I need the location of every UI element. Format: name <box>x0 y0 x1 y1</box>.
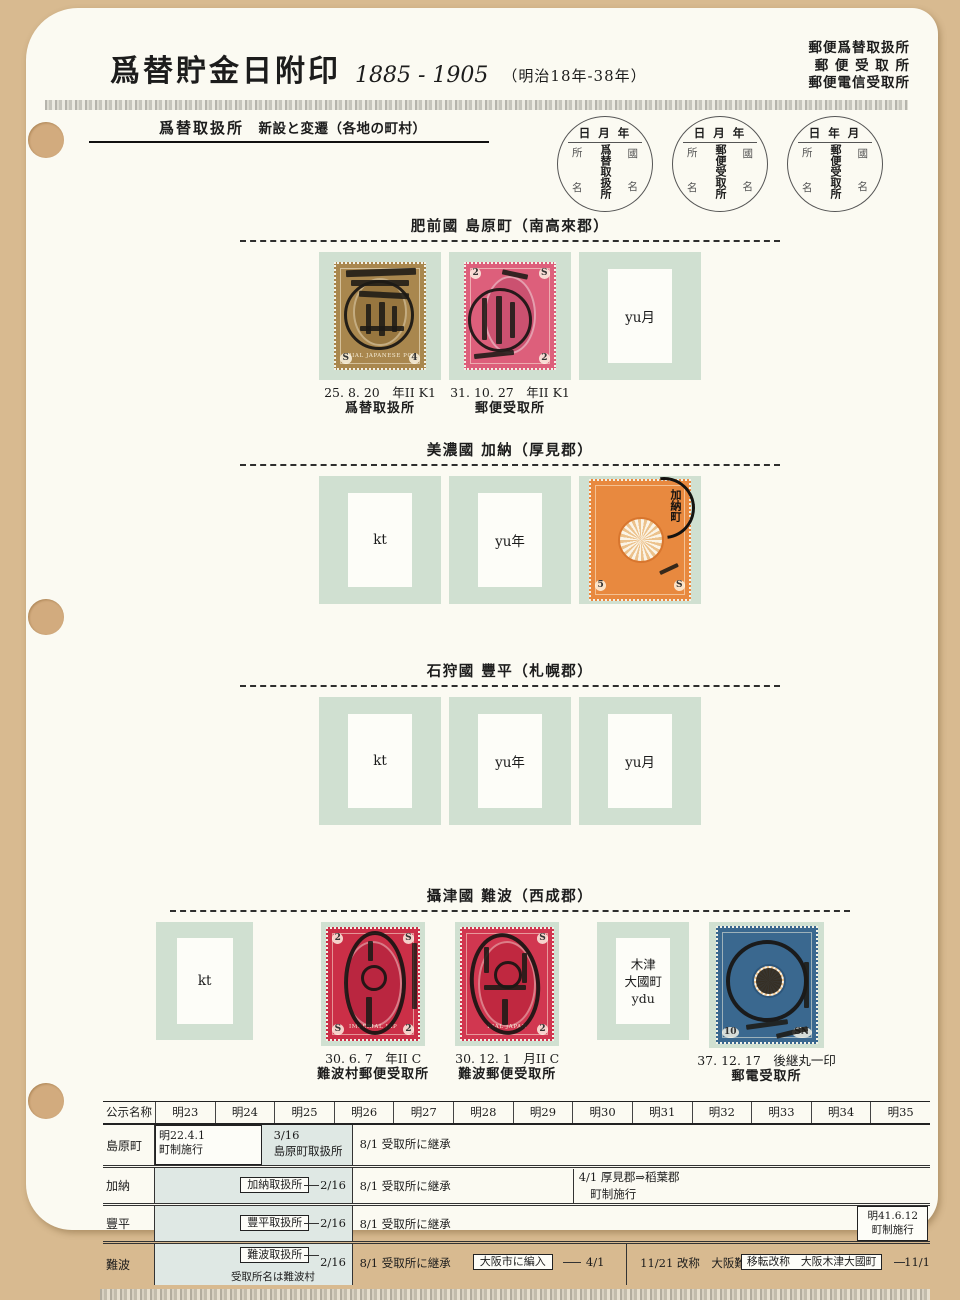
section-divider <box>240 685 780 687</box>
postmark-smudge <box>484 985 526 990</box>
postmark-blob <box>756 968 782 994</box>
stamp-image-2sen-red-b: RIAL JAPAN S 2 <box>460 927 554 1041</box>
table-header-row: 公示名称 明23 明24 明25 明26 明27 明28 明29 明30 明31… <box>103 1102 930 1125</box>
stamp-corner: 2 <box>403 1024 414 1035</box>
stamp-corner: 2 <box>537 1024 548 1035</box>
seal-right-bottom: 名 <box>858 179 869 194</box>
punch-hole <box>28 122 64 158</box>
event-date: 2/16 <box>320 1255 346 1269</box>
column-header: 公示名称 <box>103 1102 155 1123</box>
stamp-slot: IMPERIAL JAP 2 S S 2 3 <box>317 922 429 1083</box>
placeholder-label: kt <box>177 938 233 1024</box>
section-divider <box>240 464 780 466</box>
placeholder-label: kt <box>348 493 412 587</box>
stamp-corner: 2 <box>539 353 550 364</box>
seal-right-top: 國 <box>858 146 869 161</box>
event-box: 明41.6.12 町制施行 <box>857 1206 928 1241</box>
caption-date: 30. 12. 1 月II C <box>455 1051 559 1067</box>
title-years: 1885 - 1905 <box>355 63 488 90</box>
event-text: 8/1 受取所に継承 <box>360 1178 451 1194</box>
corner-office-list: 郵便爲替取扱所 郵 便 受 取 所 郵便電信受取所 <box>809 40 911 93</box>
seal-left-bottom: 名 <box>572 180 583 195</box>
timeline-table: 公示名称 明23 明24 明25 明26 明27 明28 明29 明30 明31… <box>103 1101 930 1285</box>
page-title: 爲替貯金日附印 <box>110 46 341 90</box>
seal-diagram-uketori-2: 日 年 月 所名 郵便受取所 國名 <box>787 116 883 212</box>
stamp-mount: 2 S 2 <box>449 252 571 380</box>
stamp-caption: 30. 6. 7 年II C 難波村郵便受取所 <box>317 1051 429 1083</box>
postmark-smudge <box>522 953 527 983</box>
column-header: 明31 <box>632 1102 692 1123</box>
seal-right-bottom: 名 <box>628 179 639 194</box>
stamp-slot: RIAL JAPANESE PO S 4 <box>319 252 441 417</box>
event-text: 11/21 改称 大阪難波 <box>640 1255 757 1271</box>
corner-line: 郵便爲替取扱所 <box>809 40 911 58</box>
row-label: 島原町 <box>103 1125 155 1165</box>
title-row: 爲替貯金日附印 1885 - 1905 （明治18年-38年） <box>26 46 938 90</box>
grid-line <box>352 1125 353 1165</box>
section-kano: 美濃國 加納（厚見郡） kt yu年 5 S 加納 <box>26 439 938 604</box>
stamp-mount: RIAL JAPAN S 2 <box>455 922 559 1046</box>
caption-office: 郵電受取所 <box>697 1069 836 1085</box>
seal-diagram-kawase: 日 月 年 所名 爲替取扱所 國名 <box>557 116 653 212</box>
corner-line: 郵便電信受取所 <box>809 75 911 93</box>
stamp-corner: S <box>539 268 551 279</box>
event-text: 8/1 受取所に継承 <box>360 1136 451 1152</box>
postmark-smudge <box>368 941 373 961</box>
postmark-smudge <box>804 962 809 1008</box>
row-label: 豐平 <box>103 1206 155 1241</box>
stamp-mount: yu月 <box>579 252 701 380</box>
placeholder-label: yu月 <box>608 714 672 808</box>
punch-hole <box>28 599 64 635</box>
postmark-smudge <box>484 947 489 973</box>
stamp-slot: 10 SN 37. 12. 17 後継丸一印 郵電受取所 <box>697 922 836 1085</box>
section-title: 攝津國 難波（西成郡） <box>54 885 960 906</box>
stamp-slot: 2 S 2 31. 10. 27 年II K1 <box>449 252 571 417</box>
postmark-smudge <box>510 302 515 338</box>
stamp-mount: 10 SN <box>709 922 824 1048</box>
column-header: 明30 <box>572 1102 632 1123</box>
grid-line <box>352 1206 353 1241</box>
connector-line <box>304 1223 320 1224</box>
column-header: 明23 <box>155 1102 215 1123</box>
seal-right-bottom: 名 <box>743 179 754 194</box>
blank-slot: 木津 大國町 ydu <box>597 922 689 1040</box>
stamp-mount: IMPERIAL JAP 2 S S 2 <box>321 922 425 1046</box>
event-box: 明22.4.1 町制施行 <box>155 1125 262 1165</box>
seal-office-name: 郵便受取所 <box>714 144 726 205</box>
section-namba: 攝津國 難波（西成郡） kt IMPERIAL JAP 2 S S 2 <box>26 885 938 1085</box>
event-date: 2/16 <box>320 1216 346 1230</box>
grid-line <box>626 1244 627 1285</box>
stamp-corner: S <box>537 933 549 944</box>
blank-slot: yu月 <box>579 697 701 825</box>
stamp-caption: 30. 12. 1 月II C 難波郵便受取所 <box>455 1051 559 1083</box>
placeholder-label: yu月 <box>608 269 672 363</box>
blank-slot: yu月 <box>579 252 701 380</box>
postmark-text: 加納町 <box>669 489 681 522</box>
postmark-smudge <box>502 999 508 1025</box>
column-header: 明27 <box>393 1102 453 1123</box>
stamp-mount: 5 S 加納町 <box>579 476 701 604</box>
stamp-mount: RIAL JAPANESE PO S 4 <box>319 252 441 380</box>
event-box: 加納取扱所 <box>240 1177 309 1193</box>
ornament-band-top <box>45 100 908 110</box>
event-note: 3/16 島原町取扱所 <box>274 1127 343 1159</box>
stamp-slot: 5 S 加納町 <box>579 476 701 604</box>
caption-office: 難波郵便受取所 <box>455 1067 559 1083</box>
postmark-smudge <box>482 298 487 340</box>
stamp-image-4sen-olive: RIAL JAPANESE PO S 4 <box>334 262 426 370</box>
stamp-corner: 4 <box>409 353 420 364</box>
seal-right-top: 國 <box>628 146 639 161</box>
title-era: （明治18年-38年） <box>502 65 646 90</box>
blank-slot: kt <box>156 922 253 1040</box>
stamp-image-2sen-red-a: IMPERIAL JAP 2 S S 2 <box>326 927 420 1041</box>
connector-line <box>563 1262 582 1263</box>
stamp-caption: 37. 12. 17 後継丸一印 郵電受取所 <box>697 1053 836 1085</box>
page-header: 郵便爲替取扱所 郵 便 受 取 所 郵便電信受取所 爲替貯金日附印 1885 -… <box>26 8 938 143</box>
subtitle-row: 爲替取扱所 新設と変遷（各地の町村） <box>89 117 489 143</box>
blank-slot: kt <box>319 476 441 604</box>
postmark-smudge <box>474 350 514 359</box>
stamp-caption: 31. 10. 27 年II K1 郵便受取所 <box>450 385 570 417</box>
stamp-caption: 25. 8. 20 年II K1 爲替取扱所 <box>324 385 436 417</box>
seal-left-top: 所 <box>572 145 583 160</box>
placeholder-label: yu年 <box>478 493 542 587</box>
stamp-corner: 2 <box>470 268 481 279</box>
stamp-slot: RIAL JAPAN S 2 30. 12. 1 月II C <box>455 922 559 1083</box>
blank-slot: kt <box>319 697 441 825</box>
seal-left-bottom: 名 <box>687 180 698 195</box>
postmark-smudge <box>659 563 679 575</box>
seal-date-order: 日 年 月 <box>788 117 882 141</box>
connector-line <box>304 1255 320 1256</box>
event-note: 受取所名は難波村 <box>231 1269 315 1284</box>
event-text: 4/1 厚見郡⇒稻葉郡 町制施行 <box>573 1169 680 1203</box>
caption-date: 25. 8. 20 年II K1 <box>324 385 436 401</box>
seal-office-name: 爲替取扱所 <box>599 144 611 205</box>
column-header: 明25 <box>274 1102 334 1123</box>
caption-office: 爲替取扱所 <box>324 401 436 417</box>
section-title: 肥前國 島原町（南高來郡） <box>54 215 960 236</box>
event-box: 難波取扱所 <box>240 1247 309 1263</box>
postmark-smudge <box>366 997 372 1027</box>
stamp-corner: 2 <box>332 933 343 944</box>
connector-line <box>304 1185 320 1186</box>
seal-left-top: 所 <box>687 145 698 160</box>
event-box: 大阪市に編入 <box>473 1254 553 1270</box>
event-box: 豐平取扱所 <box>240 1215 309 1231</box>
seal-date-order: 日 月 年 <box>558 117 652 141</box>
stamp-image-2sen-pink: 2 S 2 <box>464 262 556 370</box>
stamp-image-10sen-blue: 10 SN <box>716 926 818 1044</box>
placeholder-label: yu年 <box>478 714 542 808</box>
column-header: 明34 <box>811 1102 871 1123</box>
event-date: 11/1 <box>904 1255 930 1269</box>
column-header: 明24 <box>215 1102 275 1123</box>
caption-date: 30. 6. 7 年II C <box>317 1051 429 1067</box>
postmark-smudge <box>412 943 417 1009</box>
seal-right-top: 國 <box>743 146 754 161</box>
caption-office: 郵便受取所 <box>450 401 570 417</box>
table-row-shimabara: 島原町 明22.4.1 町制施行 3/16 島原町取扱所 8/1 受取所に継承 <box>103 1125 930 1165</box>
album-page: 郵便爲替取扱所 郵 便 受 取 所 郵便電信受取所 爲替貯金日附印 1885 -… <box>26 8 938 1230</box>
placeholder-label: kt <box>348 714 412 808</box>
column-header: 明33 <box>751 1102 811 1123</box>
caption-date: 31. 10. 27 年II K1 <box>450 385 570 401</box>
column-header: 明26 <box>334 1102 394 1123</box>
stamp-corner: S <box>332 1024 344 1035</box>
section-divider <box>170 910 850 912</box>
blank-slot: yu年 <box>449 697 571 825</box>
section-title: 石狩國 豐平（札幌郡） <box>54 660 960 681</box>
column-header: 明35 <box>870 1102 930 1123</box>
subtitle: 爲替取扱所 <box>159 119 244 137</box>
caption-date: 37. 12. 17 後継丸一印 <box>697 1053 836 1069</box>
section-title: 美濃國 加納（厚見郡） <box>54 439 960 460</box>
stamp-corner: S <box>674 580 686 591</box>
corner-line: 郵 便 受 取 所 <box>809 58 911 76</box>
seal-office-name: 郵便受取所 <box>829 144 841 205</box>
seal-left-top: 所 <box>802 145 813 160</box>
punch-hole <box>28 1083 64 1119</box>
table-row-kano: 加納 加納取扱所 2/16 8/1 受取所に継承 4/1 厚見郡⇒稻葉郡 町制施… <box>103 1165 930 1203</box>
postmark-smudge <box>346 268 416 277</box>
event-text: 8/1 受取所に継承 <box>360 1216 451 1232</box>
seal-date-order: 日 月 年 <box>673 117 767 141</box>
event-date: 4/1 <box>586 1255 605 1269</box>
postmark-smudge <box>351 280 409 286</box>
postmark-smudge <box>360 326 404 331</box>
row-label: 加納 <box>103 1168 155 1203</box>
grid-line <box>352 1168 353 1203</box>
table-row-namba: 難波 難波取扱所 受取所名は難波村 2/16 8/1 受取所に継承 大阪市に編入… <box>103 1241 930 1285</box>
placeholder-label: 木津 大國町 ydu <box>616 938 670 1024</box>
row-label: 難波 <box>103 1244 155 1285</box>
stamp-corner: 10 <box>722 1027 740 1038</box>
table-row-toyohira: 豐平 豐平取扱所 2/16 8/1 受取所に継承 明41.6.12 町制施行 <box>103 1203 930 1241</box>
section-divider <box>240 240 780 242</box>
postmark-inner-circle <box>361 965 387 991</box>
caption-office: 難波村郵便受取所 <box>317 1067 429 1083</box>
grid-line <box>352 1244 353 1285</box>
stamp-corner: S <box>340 353 352 364</box>
column-header: 明32 <box>692 1102 752 1123</box>
section-shimabara: 肥前國 島原町（南高來郡） RIAL JAPANESE PO S 4 <box>26 215 938 417</box>
stamp-corner: 5 <box>595 580 606 591</box>
stamp-image-5sen-orange: 5 S 加納町 <box>589 479 691 601</box>
event-box: 移転改称 大阪木津大國町 <box>741 1254 883 1270</box>
event-date: 2/16 <box>320 1178 346 1192</box>
section-toyohira: 石狩國 豐平（札幌郡） kt yu年 yu月 <box>26 660 938 825</box>
column-header: 明29 <box>513 1102 573 1123</box>
column-header: 明28 <box>453 1102 513 1123</box>
seal-diagram-uketori-1: 日 月 年 所名 郵便受取所 國名 <box>672 116 768 212</box>
blank-slot: yu年 <box>449 476 571 604</box>
event-text: 8/1 受取所に継承 <box>360 1255 451 1271</box>
postmark-smudge <box>496 296 502 344</box>
subtitle-note: 新設と変遷（各地の町村） <box>258 121 426 137</box>
ornament-band-bottom <box>100 1289 930 1300</box>
seal-left-bottom: 名 <box>802 180 813 195</box>
